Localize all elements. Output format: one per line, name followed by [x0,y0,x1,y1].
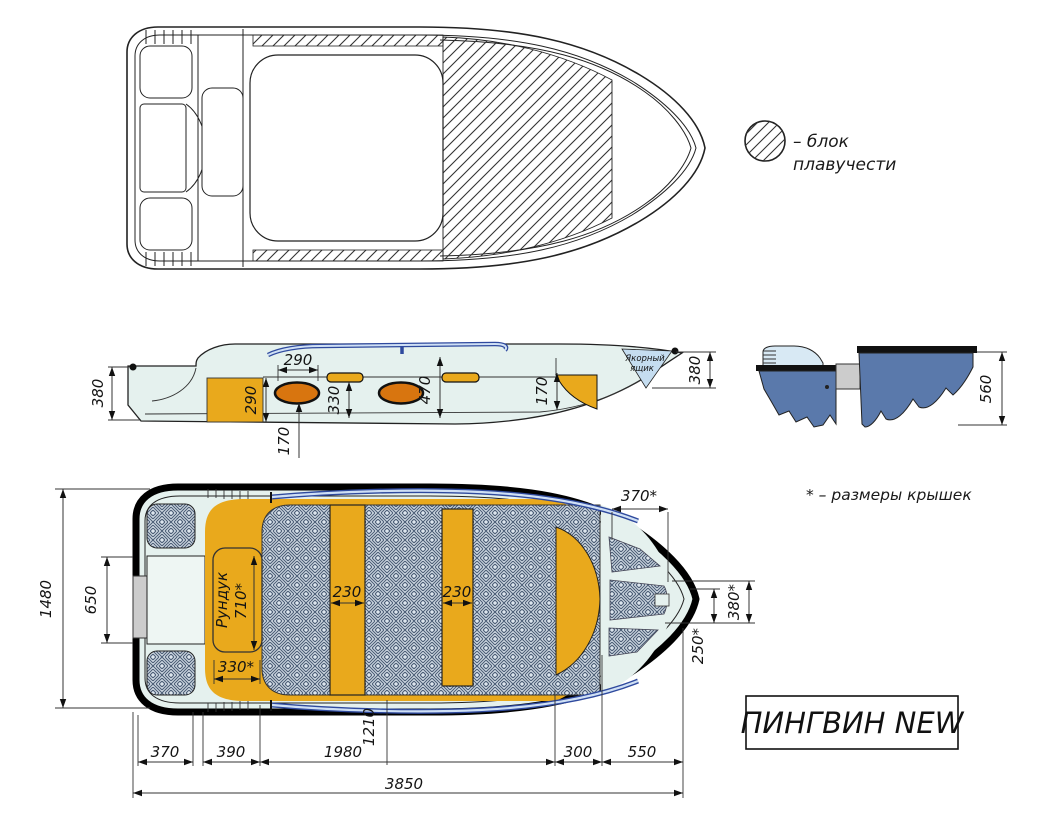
bench-strip-1 [327,373,363,382]
boat-drawing-sheet: – блок плавучести Якорный ящик 380 290 2… [0,0,1058,822]
side-view: Якорный ящик 380 290 290 330 170 470 170… [89,344,716,458]
buoyancy-symbol-hatch [745,121,785,161]
ext-transom-width [101,557,133,643]
dim-locker-width: 330* [218,658,255,676]
transom-cutout [147,556,205,644]
dim-bow-cover: 250* [689,627,707,664]
dim-section-depth: 560 [977,375,995,404]
section-hull-left [759,371,836,427]
dim-transom-width: 650 [82,586,100,615]
cockpit-floor [262,505,600,695]
section-deck-left [756,365,838,371]
plan-view: 1480 650 Рундук 710* 330* 230 230 370* 3… [37,487,755,765]
section-hull-right [859,353,973,427]
section-view: 560 [756,346,1007,427]
motor-mount-plate-section [836,364,860,389]
dim-seg3: 1980 [324,743,362,761]
gunwale-hatch-top [253,35,443,46]
dim-bow-height: 380 [686,356,704,385]
dim-bow-step: 170 [533,377,551,406]
dim-beam: 1480 [37,580,55,618]
stern-buoyancy-bottom [147,651,195,695]
seat-cushion-1 [275,383,319,404]
locker-label: Рундук [213,572,231,628]
section-deck-right [857,346,977,353]
gunwale-hatch-bottom [253,250,443,261]
dim-bow-hatch-width: 370* [621,487,658,505]
motor-mount-plate-plan [133,576,147,638]
anchor-box-label-2: ящик [630,364,655,374]
drain-dot [825,385,829,389]
dim-seg5: 550 [628,743,657,761]
bow-cleat [672,348,679,355]
dim-seg1: 370 [151,743,180,761]
section-console [763,346,823,367]
legend-text-1: – блок [793,132,850,152]
dim-bench1-width: 230 [333,583,362,601]
drawing: – блок плавучести Якорный ящик 380 290 2… [0,0,1058,822]
foredeck-buoyancy-hatch [443,37,612,259]
dim-locker-length: 710* [232,582,250,619]
model-title: ПИНГВИН NEW [741,706,965,740]
dim-seat-width: 290 [284,351,313,369]
stern-cleat [130,364,137,371]
dim-cockpit-depth: 470 [416,376,434,405]
dim-bench2-width: 230 [443,583,472,601]
dim-seg2: 390 [217,743,246,761]
bench-strip-2 [442,373,479,382]
dim-stern-height: 380 [89,379,107,408]
covers-note: * – размеры крышек [806,486,972,504]
stern-buoyancy-top [147,504,195,548]
legend-text-2: плавучести [793,155,896,175]
dim-seg4: 300 [564,743,593,761]
dim-bow-width: 380* [725,583,743,620]
legend: – блок плавучести [745,121,896,175]
dim-strip-width: 330 [325,386,343,415]
dim-cockpit-ref: 1210 [360,708,378,746]
bow-eye-notch [655,594,669,606]
helm-seat [202,88,243,196]
dim-seat-floor: 170 [275,427,293,456]
cockpit-area [250,55,443,241]
dim-total-length: 3850 [385,775,423,793]
anchor-box-label-1: Якорный [624,354,665,364]
top-deck-view [127,27,705,269]
dim-locker-height: 290 [242,386,260,415]
title-block: ПИНГВИН NEW [741,696,965,749]
